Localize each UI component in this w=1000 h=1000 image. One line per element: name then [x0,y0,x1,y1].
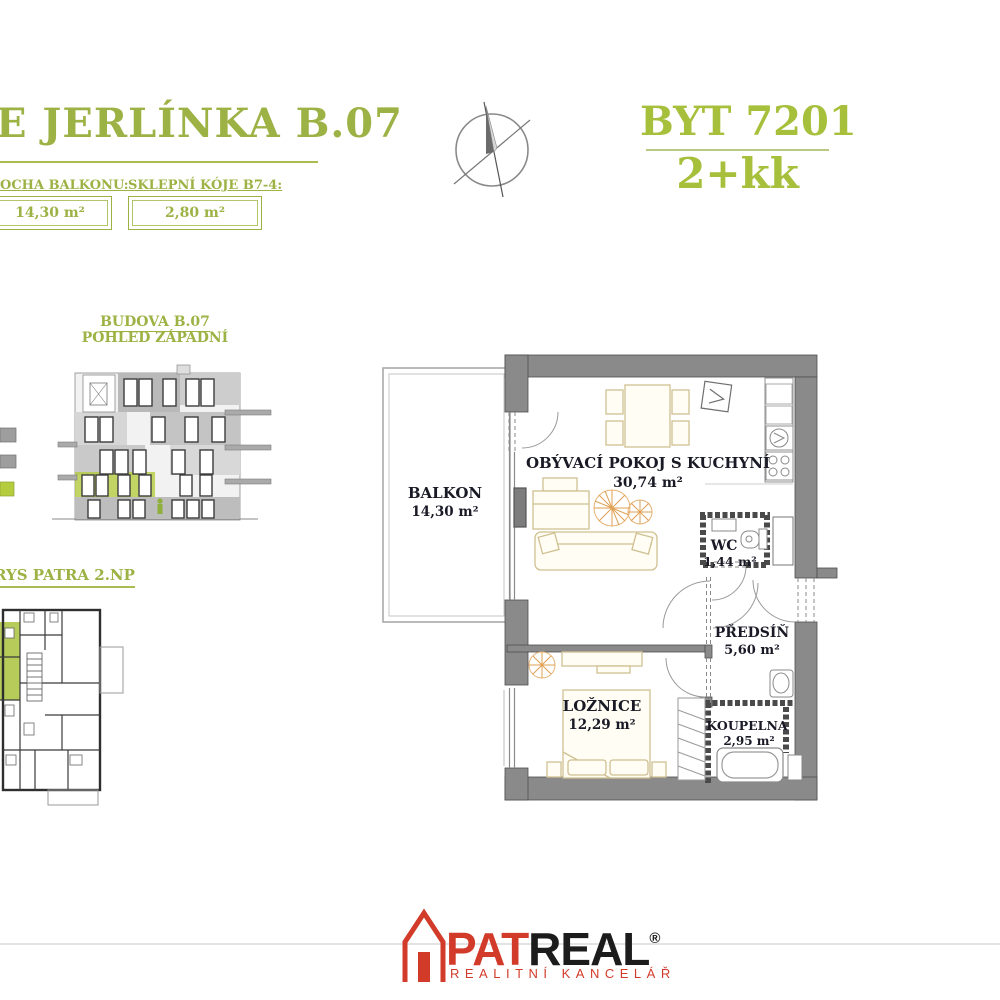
service-shaft [773,517,793,565]
unit-number: BYT 7201 [640,98,835,145]
room-area-koupelna: 2,95 m² [723,734,774,748]
scale-person-figure [157,498,162,514]
brand-tagline: REALITNÍ KANCELÁŘ [450,966,676,981]
room-name-koupelna: KOUPELNA [706,718,787,733]
room-area-wc: 1,44 m² [703,554,757,569]
floor-plan-sheet: E JERLÍNKA B.07 OCHA BALKONU: 14,30 m² S… [0,0,1000,1000]
wall-niche [788,755,802,780]
room-area-loznice: 12,29 m² [568,717,635,733]
room-name-loznice: LOŽNICE [563,697,642,715]
dining-set [606,385,689,447]
project-title: E JERLÍNKA B.07 [0,100,403,147]
bathtub [717,748,783,782]
elevation-title-line2: POHLED ZÁPADNÍ [82,330,228,346]
wardrobe [678,698,705,780]
patreal-house-icon [400,908,448,986]
washbasin [770,670,793,697]
room-name-balkon: BALKON [408,484,483,502]
apartment-floor-plan: BALKON 14,30 m² OBÝVACÍ POKOJ S KUCHYNÍ … [370,340,870,820]
elevation-title: BUDOVA B.07 POHLED ZÁPADNÍ [15,314,295,346]
cellar-box-label: SKLEPNÍ KÓJE B7-4: [128,178,282,193]
neighbour-balcony-slabs [0,428,16,496]
balcony-area-label: OCHA BALKONU: [0,178,129,193]
title-underline [0,161,318,163]
building-elevation-drawing [0,355,272,530]
room-name-living: OBÝVACÍ POKOJ S KUCHYNÍ [526,454,770,472]
unit-layout: 2+kk [640,149,835,198]
floor-overview-title: RYS PATRA 2.NP [0,566,135,588]
tv-cabinet [533,478,589,529]
room-area-balkon: 14,30 m² [411,504,478,520]
balcony-area-value: 14,30 m² [0,200,108,226]
room-area-predsin: 5,60 m² [724,643,780,658]
sofa [535,532,657,570]
overview-stairs [27,653,42,701]
cellar-box: 2,80 m² [128,196,262,230]
room-name-wc: WC [710,538,738,554]
bedroom-furniture [547,652,666,778]
floor-overview-plan [0,595,135,813]
registered-mark: ® [649,930,660,947]
appliance-dishwasher [701,381,731,411]
room-name-predsin: PŘEDSÍŇ [715,623,790,641]
room-area-living: 30,74 m² [613,475,683,491]
cellar-box-value: 2,80 m² [132,200,258,226]
unit-block: BYT 7201 2+kk [640,98,835,198]
overview-balconies [48,647,123,805]
compass-icon [448,98,536,200]
balcony-area-box: 14,30 m² [0,196,112,230]
